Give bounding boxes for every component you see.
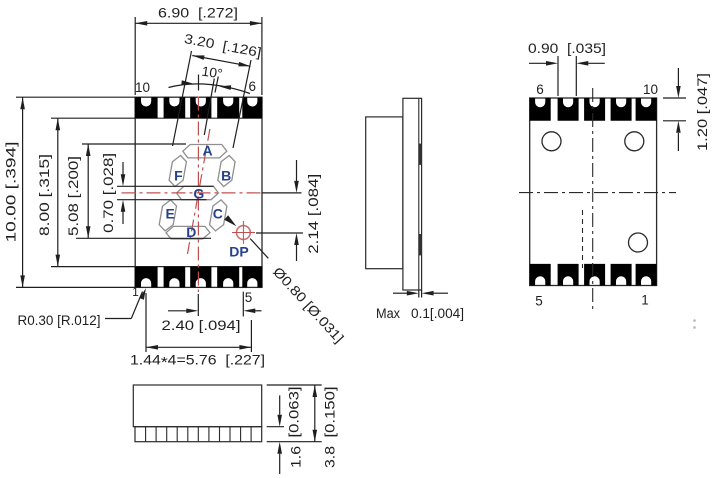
svg-text:1.20 [.047]: 1.20 [.047] [695, 73, 710, 151]
svg-text:2.40 [.094]: 2.40 [.094] [162, 318, 241, 333]
svg-text:2.14 [.084]: 2.14 [.084] [306, 174, 321, 254]
svg-text:6.90 [.272]: 6.90 [.272] [158, 6, 238, 21]
svg-text:R0.30 [R.012]: R0.30 [R.012] [18, 313, 101, 328]
svg-text:10: 10 [135, 80, 150, 95]
svg-text:1.6: 1.6 [289, 446, 304, 468]
svg-text:A: A [203, 142, 213, 158]
svg-text:F: F [174, 168, 183, 184]
svg-text:C: C [213, 206, 223, 222]
svg-text:0.1[.004]: 0.1[.004] [411, 306, 464, 321]
svg-text:G: G [193, 185, 204, 201]
svg-text:5: 5 [245, 290, 253, 305]
svg-text:10°: 10° [201, 64, 224, 82]
svg-text:3.8: 3.8 [323, 446, 338, 468]
svg-text:5: 5 [535, 294, 543, 309]
svg-text:6: 6 [249, 79, 257, 94]
svg-text:[0.150]: [0.150] [323, 387, 338, 438]
svg-text:0.90 [.035]: 0.90 [.035] [528, 41, 606, 56]
svg-text:B: B [221, 168, 231, 184]
svg-text:D: D [186, 224, 196, 240]
svg-text:10.00 [.394]: 10.00 [.394] [4, 142, 19, 243]
svg-text:E: E [166, 206, 175, 222]
svg-text:0.70 [.028]: 0.70 [.028] [101, 153, 116, 233]
svg-text:8.00 [.315]: 8.00 [.315] [37, 154, 52, 236]
svg-text:[0.063]: [0.063] [287, 387, 302, 438]
svg-text:1: 1 [641, 293, 649, 308]
svg-text:10: 10 [643, 82, 658, 97]
svg-text:DP: DP [229, 244, 248, 260]
svg-text:6: 6 [536, 82, 544, 97]
svg-text:Max: Max [376, 306, 400, 321]
svg-text:5.08 [.200]: 5.08 [.200] [66, 156, 81, 236]
